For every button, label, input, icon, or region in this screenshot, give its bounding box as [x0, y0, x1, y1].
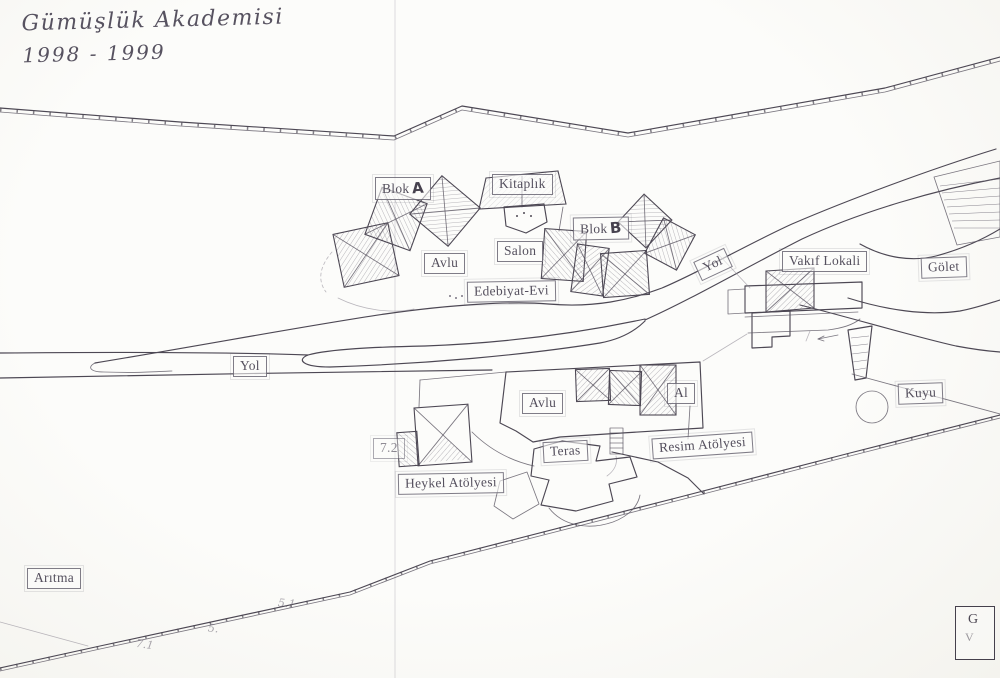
label-golet: Gölet — [921, 256, 967, 278]
label-blok-b-letter: B — [610, 218, 623, 238]
ramp-hatched-topright — [934, 161, 1000, 245]
survey-mark-5: 5. — [207, 621, 219, 635]
stamp-letter-g: G — [968, 612, 994, 628]
label-blok-b: BlokB — [573, 217, 630, 241]
label-heykel-atolyesi: Heykel Atölyesi — [398, 472, 504, 495]
label-al: Al — [667, 383, 695, 404]
label-kitaplik: Kitaplık — [492, 174, 553, 195]
label-vakif-lokali: Vakıf Lokali — [782, 251, 867, 272]
kuyu-well — [856, 391, 888, 423]
label-teras: Teras — [542, 440, 588, 463]
label-plot-7-2: 7.2 — [373, 438, 405, 459]
site-plan-page: Gümüşlük Akademisi 1998 - 1999 BlokA Kit… — [0, 0, 1000, 678]
boundary-fence-top — [0, 57, 1000, 140]
label-avlu-lower: Avlu — [522, 393, 563, 414]
label-salon: Salon — [497, 241, 543, 262]
site-plan-drawing — [0, 0, 1000, 678]
survey-mark-7-1: 7.1 — [135, 637, 154, 652]
title-block: Gümüşlük Akademisi 1998 - 1999 — [21, 5, 285, 68]
label-blok-a-letter: A — [412, 179, 425, 199]
stamp-box: G V — [955, 606, 995, 660]
label-edebiyat-evi: Edebiyat-Evi — [467, 280, 556, 302]
label-kuyu: Kuyu — [898, 382, 944, 404]
pond-golet — [800, 229, 1000, 352]
survey-mark-5-1: 5.1 — [277, 596, 296, 611]
label-yol-left: Yol — [233, 356, 267, 377]
label-blok-b-word: Blok — [580, 221, 608, 236]
ramp-to-stream — [806, 326, 872, 380]
label-blok-a-word: Blok — [382, 181, 409, 196]
label-avlu-upper: Avlu — [424, 253, 465, 274]
label-aritma: Arıtma — [27, 568, 81, 589]
stamp-letter-v: V — [965, 630, 994, 645]
label-blok-a: BlokA — [375, 177, 431, 200]
